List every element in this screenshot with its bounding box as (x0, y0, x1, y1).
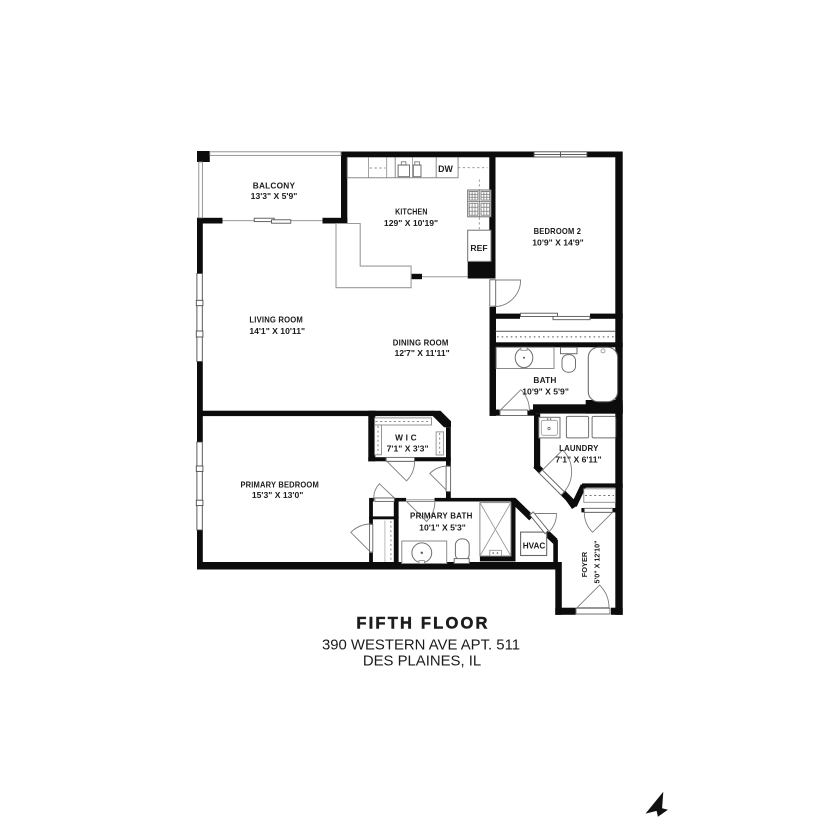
svg-text:BALCONY: BALCONY (253, 180, 296, 190)
svg-text:W I C: W I C (395, 433, 417, 443)
svg-text:390 WESTERN AVE APT. 511: 390 WESTERN AVE APT. 511 (322, 638, 520, 654)
svg-text:15'3" X 13'0": 15'3" X 13'0" (252, 490, 303, 500)
svg-text:13'3" X 5'9": 13'3" X 5'9" (251, 191, 298, 201)
svg-text:FIFTH FLOOR: FIFTH FLOOR (356, 615, 489, 633)
svg-text:LAUNDRY: LAUNDRY (559, 443, 599, 453)
svg-text:7'1" X 6'11": 7'1" X 6'11" (555, 454, 601, 464)
svg-text:PRIMARY BATH: PRIMARY BATH (410, 511, 473, 521)
svg-text:14'1" X 10'11": 14'1" X 10'11" (249, 326, 305, 336)
svg-text:5'0" X 12'10": 5'0" X 12'10" (593, 540, 602, 583)
svg-text:LIVING ROOM: LIVING ROOM (249, 315, 303, 325)
svg-text:10'9" X 5'9": 10'9" X 5'9" (522, 386, 569, 396)
svg-text:REF: REF (470, 243, 487, 253)
svg-text:10'9" X 14'9": 10'9" X 14'9" (532, 238, 583, 248)
svg-text:129" X 10'19": 129" X 10'19" (384, 218, 438, 228)
svg-text:DES PLAINES, IL: DES PLAINES, IL (363, 654, 481, 670)
svg-text:BEDROOM 2: BEDROOM 2 (534, 226, 582, 236)
svg-text:BATH: BATH (533, 375, 556, 385)
svg-text:10'1" X 5'3": 10'1" X 5'3" (419, 523, 466, 533)
svg-text:KITCHEN: KITCHEN (395, 207, 428, 217)
svg-text:DW: DW (438, 164, 453, 174)
svg-text:PRIMARY BEDROOM: PRIMARY BEDROOM (240, 480, 319, 490)
svg-text:FOYER: FOYER (580, 551, 589, 577)
svg-text:DINING ROOM: DINING ROOM (393, 337, 449, 347)
svg-text:7'1" X 3'3": 7'1" X 3'3" (387, 443, 429, 453)
svg-text:12'7" X 11'11": 12'7" X 11'11" (394, 348, 449, 358)
svg-text:HVAC: HVAC (523, 541, 546, 550)
